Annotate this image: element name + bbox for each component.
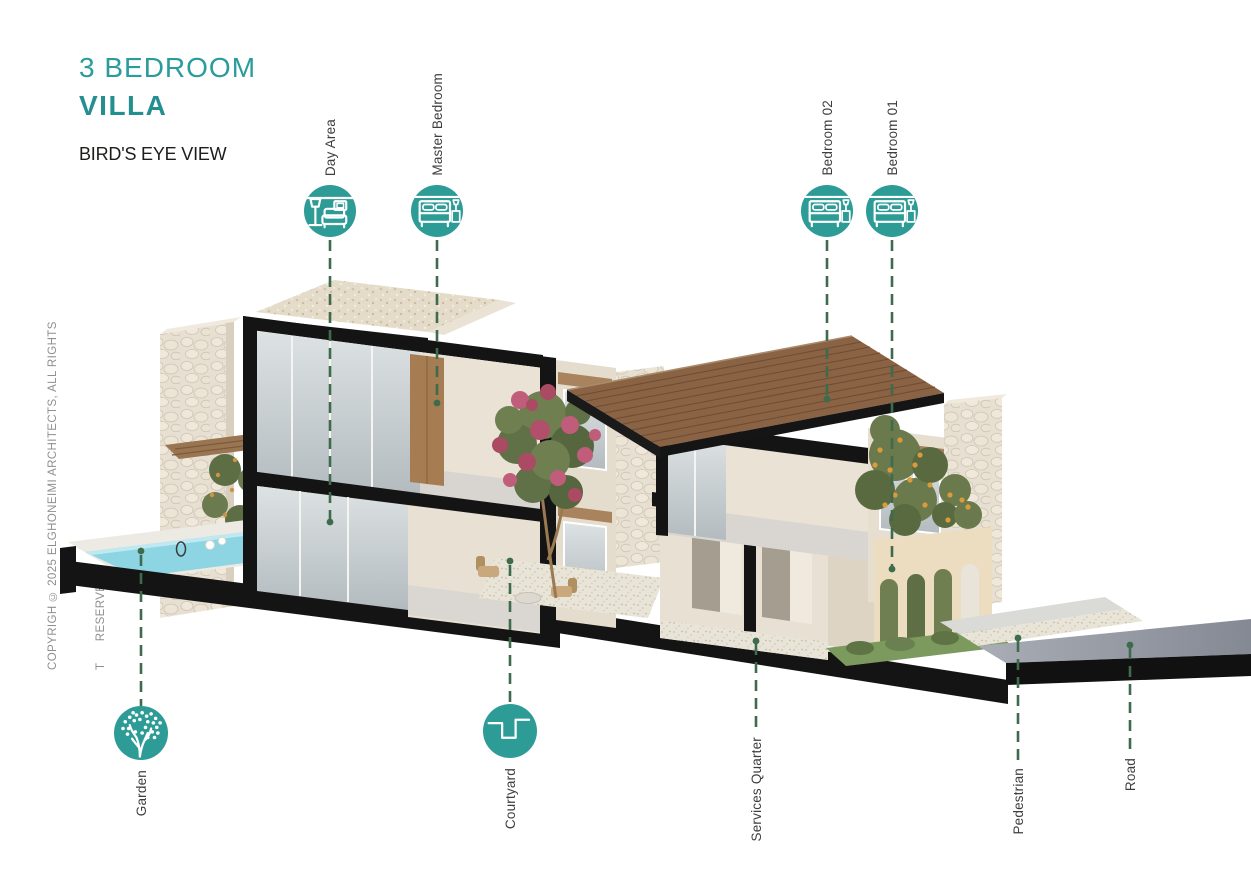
tree-icon <box>114 706 168 760</box>
callout-bedroom-01: Bedroom 01 <box>852 58 932 237</box>
double-bed-icon <box>801 185 853 237</box>
road-label: Road <box>1123 758 1138 791</box>
deck-cup <box>218 537 226 545</box>
garden-badge <box>114 706 168 760</box>
bedroom-02-label: Bedroom 02 <box>820 100 835 176</box>
courtyard-label: Courtyard <box>503 768 518 829</box>
day-area-label: Day Area <box>323 119 338 176</box>
callout-pedestrian: Pedestrian <box>978 768 1058 835</box>
courtyard-badge <box>483 704 537 758</box>
master-bedroom-label: Master Bedroom <box>430 73 445 176</box>
callout-services-quarter: Services Quarter <box>716 737 796 841</box>
callout-garden: Garden <box>101 706 181 816</box>
presentation-page: 3 BEDROOM VILLA BIRD'S EYE VIEW COPYRIGH… <box>0 0 1251 894</box>
upper-glazing <box>257 331 420 496</box>
garden-label: Garden <box>134 770 149 816</box>
lower-glazing <box>257 486 408 610</box>
deck-cup <box>206 541 215 550</box>
bedroom-02-badge <box>801 185 853 237</box>
double-bed-icon <box>411 185 463 237</box>
pedestrian-label: Pedestrian <box>1011 768 1026 835</box>
callout-courtyard: Courtyard <box>470 704 550 829</box>
villa-render <box>0 0 1251 894</box>
bedroom-01-label: Bedroom 01 <box>885 100 900 176</box>
right-building <box>652 420 884 660</box>
master-bedroom-badge <box>411 185 463 237</box>
bedroom-01-badge <box>866 185 918 237</box>
courtyard-table <box>515 593 541 604</box>
day-area-badge <box>304 185 356 237</box>
double-bed-icon <box>866 185 918 237</box>
callout-day-area: Day Area <box>290 58 370 237</box>
callout-master-bedroom: Master Bedroom <box>397 58 477 237</box>
courtyard-plan-icon <box>483 704 537 758</box>
sofa-lamp-icon <box>304 185 356 237</box>
services-quarter-label: Services Quarter <box>749 737 764 841</box>
callout-road: Road <box>1090 758 1170 791</box>
